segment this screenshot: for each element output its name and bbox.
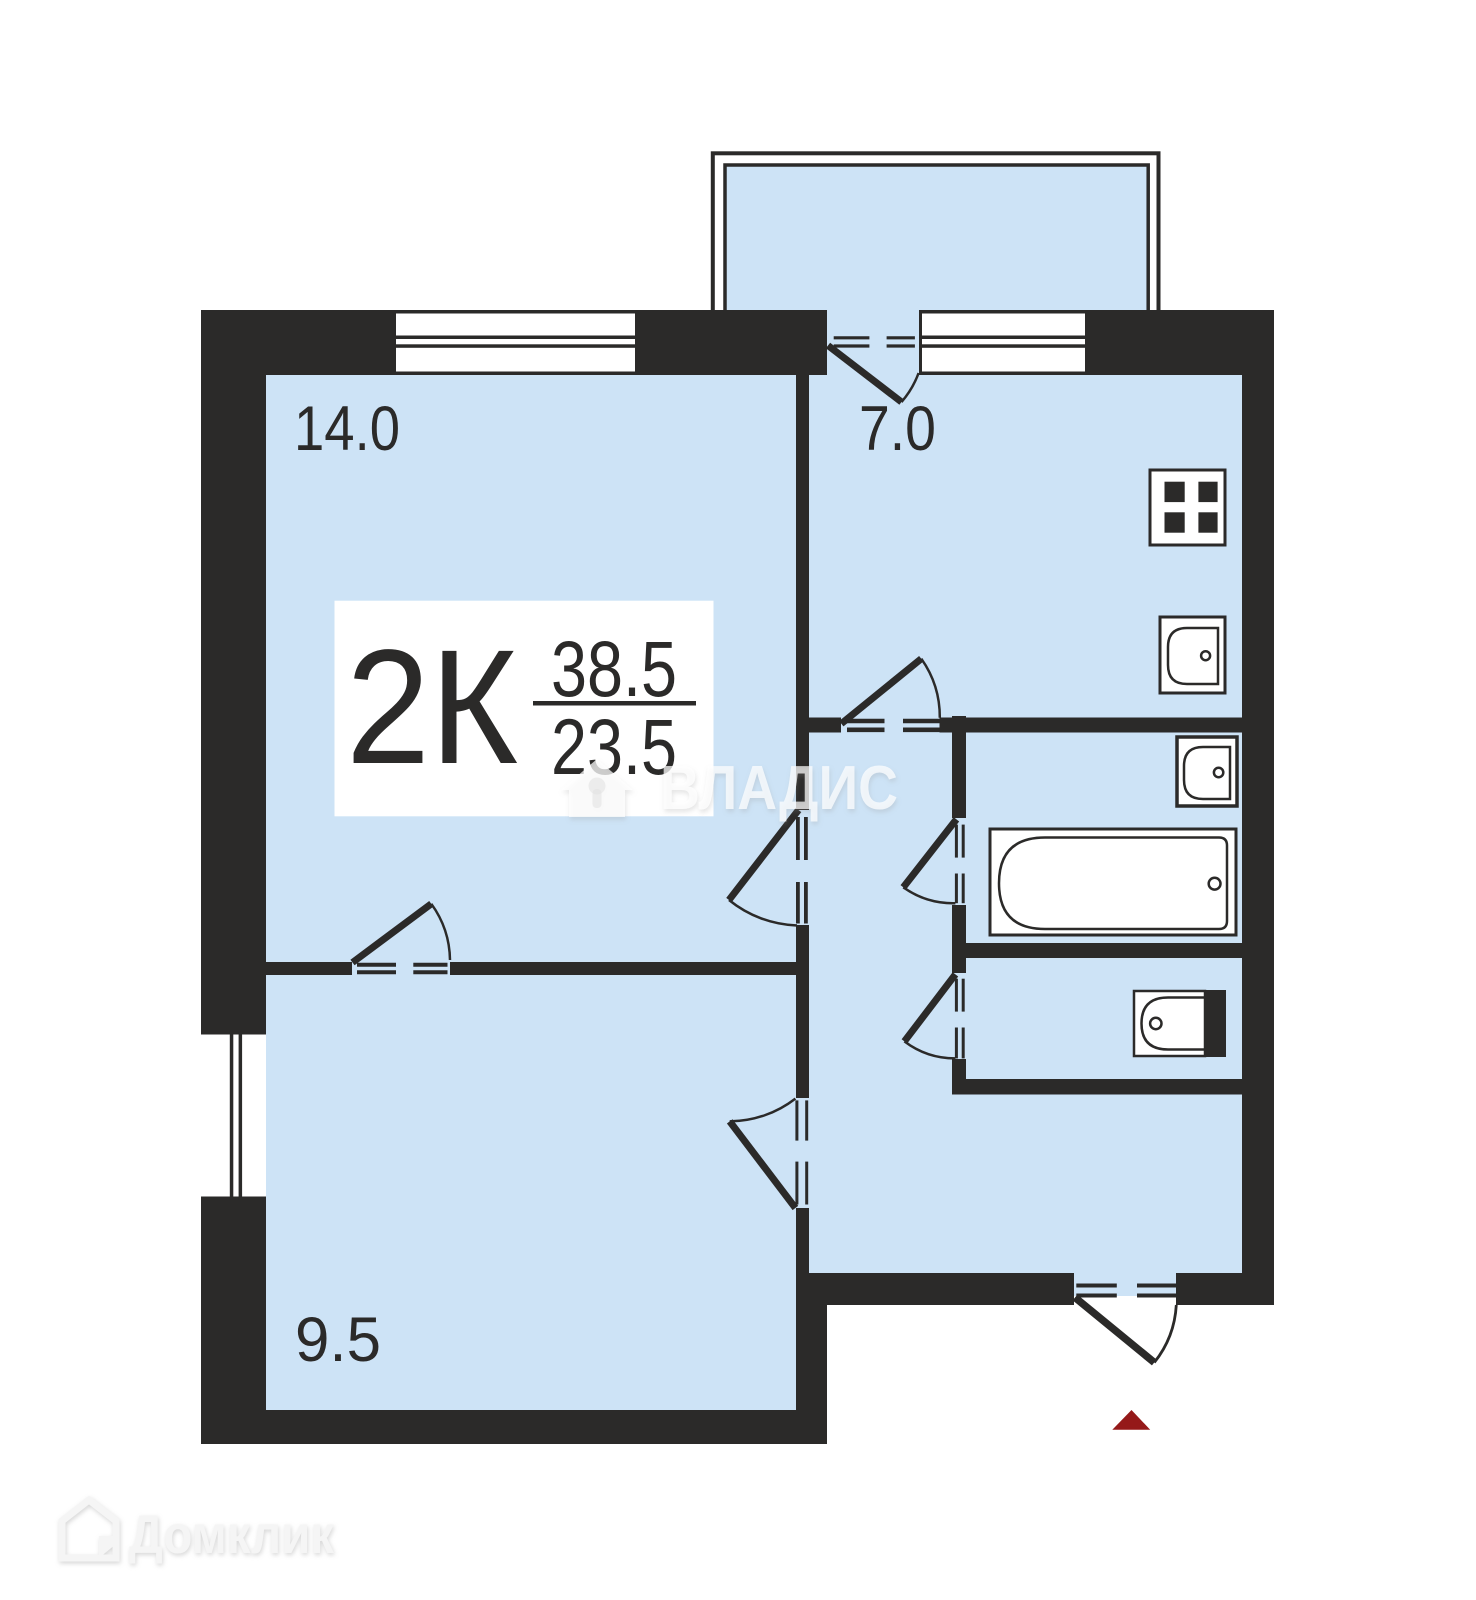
svg-text:38.5: 38.5 bbox=[551, 624, 677, 713]
svg-text:ВЛАДИС: ВЛАДИС bbox=[660, 754, 898, 823]
svg-text:9.5: 9.5 bbox=[295, 1305, 381, 1375]
svg-text:2К: 2К bbox=[346, 615, 518, 798]
svg-text:7.0: 7.0 bbox=[859, 394, 936, 464]
svg-text:14.0: 14.0 bbox=[294, 394, 400, 464]
svg-text:Домклик: Домклик bbox=[129, 1505, 335, 1565]
